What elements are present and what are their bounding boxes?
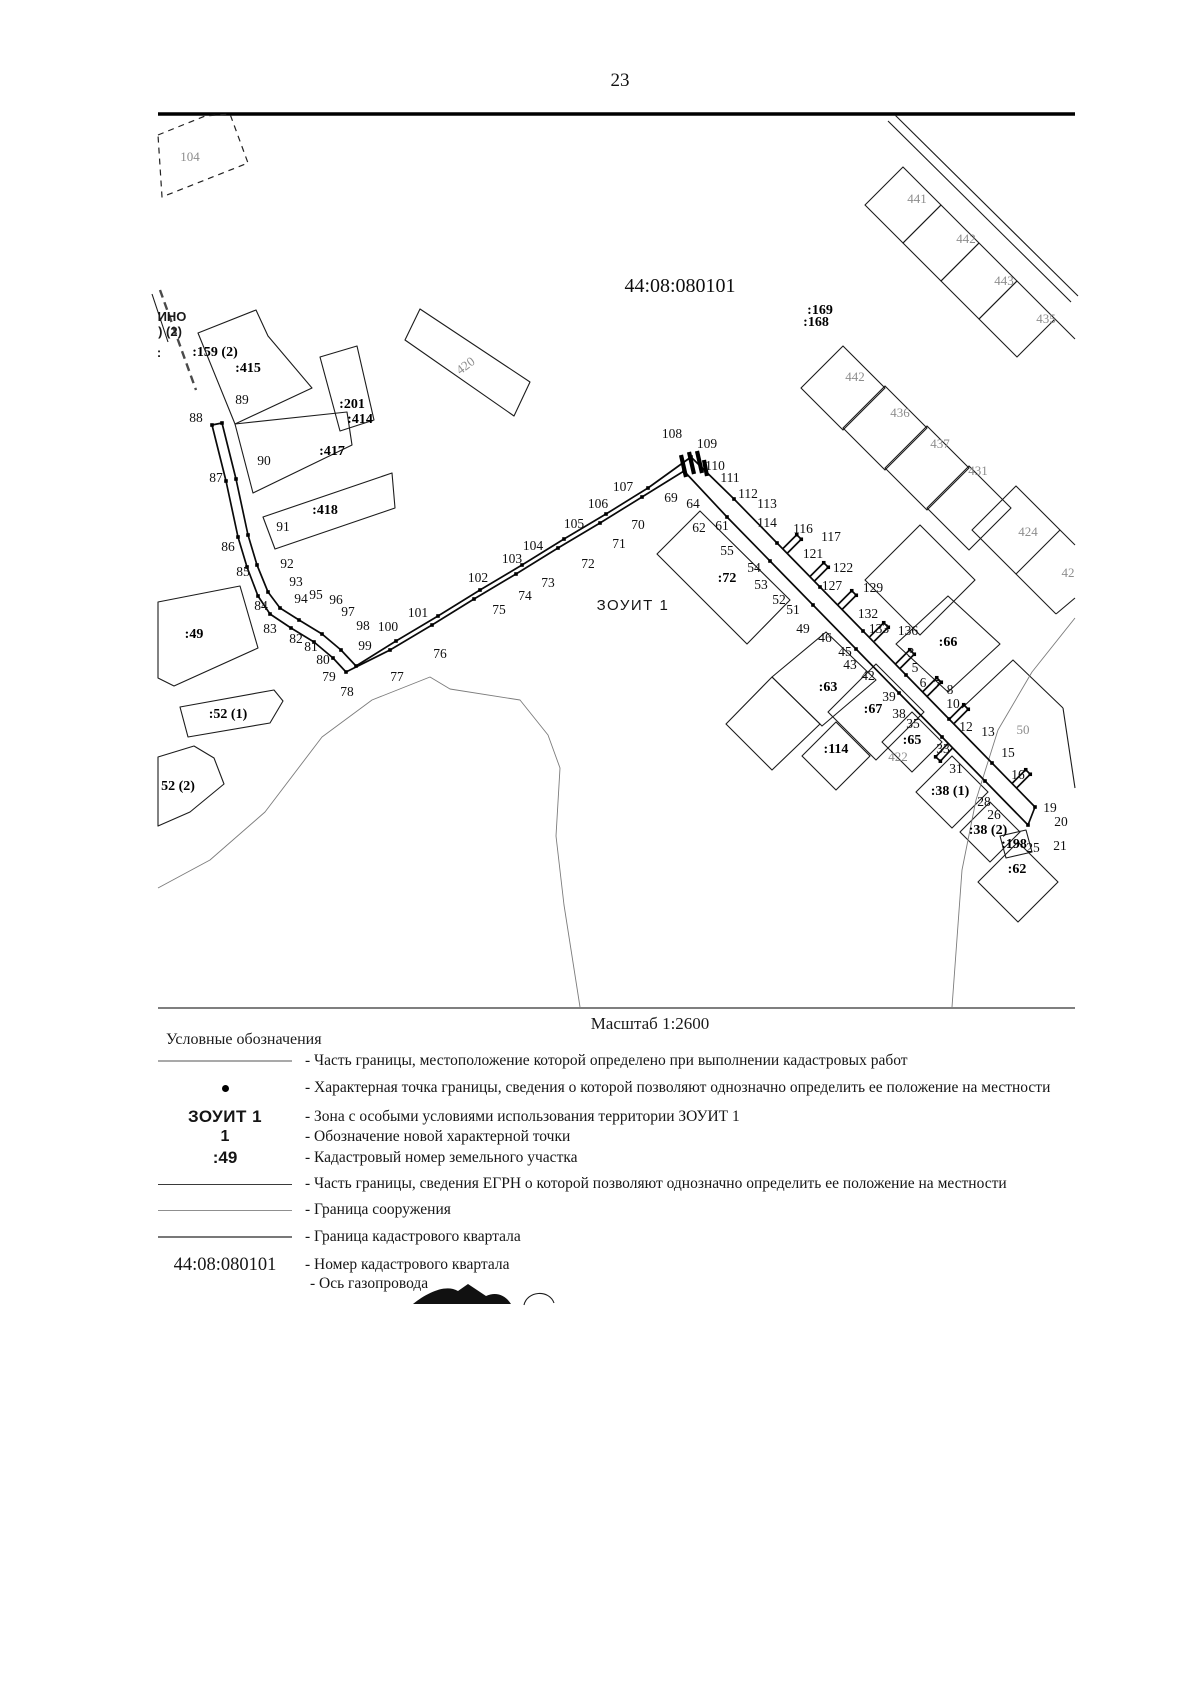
boundary-point-dot [826, 565, 830, 569]
point-number-label: 116 [793, 521, 813, 536]
point-number-label: 83 [263, 621, 277, 636]
boundary-point-dot [861, 629, 865, 633]
boundary-point-dot [935, 676, 939, 680]
point-number-label: 42 [861, 668, 875, 683]
quarter-curve [158, 677, 580, 1007]
pipeline-junction-mark [681, 455, 686, 477]
boundary-point-dot [246, 533, 250, 537]
legend-title: Условные обозначения [166, 1031, 322, 1049]
point-number-label: 105 [564, 516, 585, 531]
legend-row: - Граница сооружения [0, 1198, 1200, 1222]
parcel-417 [235, 412, 352, 493]
parcel-number-label: :201 [339, 397, 365, 412]
legend-row-text: - Часть границы, местоположение которой … [305, 1049, 908, 1073]
parcel-437 [885, 426, 969, 510]
parcel-edge [1060, 530, 1075, 545]
boundary-point-dot [966, 707, 970, 711]
parcel-65 [882, 712, 942, 772]
boundary-point-dot [472, 597, 476, 601]
parcel-436 [843, 386, 927, 470]
pipeline-stub [896, 650, 915, 669]
pipeline-stub [936, 744, 953, 761]
boundary-point-dot [234, 477, 238, 481]
pipeline-junction-mark [697, 451, 702, 473]
parcel-442 [903, 205, 979, 281]
point-number-label: 436 [890, 405, 910, 420]
point-number-label: 52 [772, 592, 786, 607]
parcel-number-label: :414 [347, 412, 373, 427]
boundary-point-dot [598, 521, 602, 525]
parcel-441 [865, 167, 941, 243]
boundary-point-dot [297, 618, 301, 622]
point-number-label: 422 [888, 749, 908, 764]
parcel-number-label: 52 (2) [161, 779, 195, 794]
parcel-442b [801, 346, 885, 430]
parcel-number-label: :67 [864, 702, 883, 717]
quarter-band [152, 294, 168, 342]
point-number-label: 89 [235, 392, 249, 407]
parcel-50-edge [962, 660, 1063, 708]
boundary-point-dot [394, 639, 398, 643]
point-number-label: 71 [612, 536, 626, 551]
boundary-point-dot [562, 537, 566, 541]
point-number-label: 16 [1011, 767, 1025, 782]
point-number-label: 64 [686, 496, 700, 511]
point-number-label: 33 [936, 741, 950, 756]
boundary-point-dot [1028, 772, 1032, 776]
parcel-63 [772, 632, 876, 726]
point-number-label: 15 [1001, 745, 1015, 760]
legend-line-symbol [158, 1060, 292, 1062]
point-number-label: 7 [934, 677, 941, 692]
page-number: 23 [540, 70, 700, 92]
boundary-point-dot [947, 717, 951, 721]
point-number-label: 8 [947, 682, 954, 697]
point-number-label: 28 [977, 794, 991, 809]
boundary-point-dot [245, 565, 249, 569]
parcel-201 [320, 346, 374, 431]
point-number-label: ИНО [158, 309, 187, 324]
boundary-point-dot [210, 423, 214, 427]
parcel-number-label: :66 [939, 635, 958, 650]
parcel-66 [896, 596, 1000, 692]
boundary-point-dot [897, 691, 901, 695]
parcel-number-label: :417 [319, 444, 345, 459]
legend-row: - Характерная точка границы, сведения о … [0, 1076, 1200, 1100]
boundary-point-dot [939, 680, 943, 684]
parcel-number-label: :159 (2) [192, 345, 238, 360]
legend-line-symbol [158, 1184, 292, 1185]
boundary-point-dot [768, 559, 772, 563]
point-number-label: 81 [304, 639, 318, 654]
parcel-number-label: :72 [718, 571, 737, 586]
point-number-label: 98 [356, 618, 370, 633]
point-number-label: 101 [408, 605, 428, 620]
point-number-label: 46 [818, 630, 832, 645]
point-number-label: 84 [254, 598, 268, 613]
boundary-point-dot [912, 652, 916, 656]
point-number-label: 95 [309, 587, 323, 602]
point-number-label: 132 [858, 606, 878, 621]
parcel-415 [198, 310, 312, 424]
quarter-curve [952, 618, 1075, 1007]
point-number-label: 88 [189, 410, 203, 425]
point-number-label: 129 [863, 580, 884, 595]
point-number-label: 122 [833, 560, 853, 575]
point-number-label: 76 [433, 646, 447, 661]
legend-row-text: - Кадастровый номер земельного участка [305, 1146, 578, 1170]
point-number-label: 136 [898, 623, 919, 638]
parcel-number-label: :38 (2) [969, 823, 1008, 838]
boundary-point-dot [289, 626, 293, 630]
pipeline-junction-mark [689, 452, 694, 474]
legend-symbol-line [150, 1172, 300, 1196]
point-number-label: 20 [1054, 814, 1068, 829]
parcel-52-2 [158, 746, 224, 826]
point-number-label: 127 [822, 578, 843, 593]
legend-line-symbol [158, 1210, 292, 1211]
point-number-label: 79 [322, 669, 336, 684]
point-number-label: 62 [692, 520, 706, 535]
point-number-label: 99 [358, 638, 372, 653]
zone-label: ЗОУИТ 1 [597, 597, 670, 614]
point-number-label: 102 [468, 570, 488, 585]
boundary-point-dot [850, 589, 854, 593]
legend-row-text: - Граница сооружения [305, 1198, 451, 1222]
legend-symbol-text: :49 [150, 1146, 300, 1170]
quarter-band [160, 290, 196, 390]
legend-symbol-line [150, 1225, 300, 1249]
parcel-number-label: :63 [819, 680, 838, 695]
point-number-label: 117 [821, 529, 841, 544]
point-number-label: 54 [747, 560, 761, 575]
point-number-label: 85 [236, 564, 250, 579]
pipeline-stub [1012, 770, 1031, 789]
boundary-point-dot [940, 735, 944, 739]
boundary-point-dot [882, 621, 886, 625]
parcel-114 [802, 722, 870, 790]
point-number-label: 114 [757, 515, 777, 530]
point-number-label: 10 [946, 696, 960, 711]
boundary-point-dot [236, 535, 240, 539]
point-number-label: 87 [209, 470, 223, 485]
boundary-point-dot [725, 515, 729, 519]
point-number-label: 55 [720, 543, 734, 558]
point-number-label: 70 [631, 517, 645, 532]
boundary-point-dot [646, 486, 650, 490]
boundary-point-dot [344, 670, 348, 674]
boundary-point-dot [818, 585, 822, 589]
pipeline-cap [1028, 807, 1035, 825]
point-number-label: 106 [588, 496, 609, 511]
parcel-50-edge [1063, 708, 1075, 788]
point-number-label: 104 [523, 538, 544, 553]
point-number-label: 442 [956, 231, 976, 246]
pipeline-stub [950, 705, 969, 724]
parcel-420 [405, 309, 530, 416]
boundary-point-dot [775, 541, 779, 545]
legend-row-text: - Часть границы, сведения ЕГРН о которой… [305, 1172, 1007, 1196]
boundary-point-dot [331, 656, 335, 660]
boundary-point-dot [224, 479, 228, 483]
parcel-number-label: :198 [1001, 837, 1027, 852]
point-number-label: 96 [329, 592, 343, 607]
boundary-point-dot [682, 469, 686, 473]
legend-row: - Часть границы, сведения ЕГРН о которой… [0, 1172, 1200, 1196]
pipeline-stub [783, 535, 802, 554]
legend-symbol-dot [150, 1076, 300, 1100]
parcel-edge [1055, 319, 1075, 339]
point-number-label: 78 [340, 684, 354, 699]
point-number-label: 74 [518, 588, 532, 603]
parcel-unlabeled [726, 677, 820, 770]
pipeline-stub [870, 623, 889, 642]
parcel-418 [263, 473, 395, 549]
point-number-label: 103 [502, 551, 523, 566]
boundary-point-dot [962, 703, 966, 707]
legend-line-symbol [158, 1236, 292, 1238]
legend-row-text: - Ось газопровода [310, 1272, 428, 1296]
pipeline-stub [838, 591, 857, 610]
boundary-point-dot [266, 590, 270, 594]
boundary-point-icon [222, 1085, 229, 1092]
boundary-point-dot [604, 512, 608, 516]
point-number-label: 35 [906, 716, 920, 731]
parcel-edge [1016, 574, 1056, 614]
parcel-38-1 [916, 756, 988, 828]
point-number-label: 113 [757, 496, 777, 511]
parcel-198 [1000, 830, 1032, 858]
boundary-point-dot [732, 497, 736, 501]
parcel-number-label: :168 [803, 315, 829, 330]
point-number-label: 53 [754, 577, 768, 592]
parcel-unlabeled [865, 525, 975, 635]
legend-symbol-empty [150, 1272, 300, 1296]
point-number-label: 420 [453, 354, 478, 378]
legend-text-symbol: :49 [213, 1148, 238, 1168]
boundary-point-dot [312, 640, 316, 644]
legend-text-symbol: ЗОУИТ 1 [188, 1107, 262, 1127]
boundary-point-dot [795, 533, 799, 537]
boundary-point-dot [388, 648, 392, 652]
point-number-label: 31 [949, 761, 963, 776]
parcel-52-1 [180, 690, 283, 737]
boundary-point-dot [934, 755, 938, 759]
point-number-label: 94 [294, 591, 308, 606]
point-number-label: 442 [845, 369, 865, 384]
point-number-label: 437 [930, 436, 950, 451]
boundary-point-dot [1026, 823, 1030, 827]
point-number-label: 104 [180, 149, 200, 164]
point-number-label: 112 [738, 486, 758, 501]
boundary-point-dot [939, 759, 943, 763]
boundary-point-dot [1024, 768, 1028, 772]
point-number-label: 3 [908, 645, 915, 660]
pipeline-cap [212, 423, 222, 425]
boundary-point-dot [520, 563, 524, 567]
parcel-38-2 [960, 802, 1020, 862]
point-number-label: 19 [1043, 800, 1057, 815]
boundary-point-dot [904, 673, 908, 677]
point-number-label: 431 [968, 463, 988, 478]
boundary-point-dot [354, 664, 358, 668]
road-line [888, 121, 1071, 302]
boundary-point-dot [689, 455, 693, 459]
parcel-424 [972, 486, 1060, 574]
point-number-label: 12 [959, 719, 973, 734]
point-number-label: ) (2) [158, 324, 182, 339]
point-number-label: 121 [803, 546, 823, 561]
pipeline-boundary [222, 423, 1035, 807]
point-number-label: 45 [838, 644, 852, 659]
parcel-number-label: :114 [824, 742, 849, 757]
point-number-label: 49 [796, 621, 810, 636]
point-number-label: 50 [1017, 722, 1030, 737]
point-number-label: 21 [1053, 838, 1067, 853]
boundary-point-dot [640, 495, 644, 499]
point-number-label: 77 [390, 669, 404, 684]
point-number-label: 6 [920, 675, 927, 690]
point-number-label: 110 [705, 458, 725, 473]
legend-symbol-line [150, 1049, 300, 1073]
legend-row: - Часть границы, местоположение которой … [0, 1049, 1200, 1073]
point-number-label: 90 [257, 453, 271, 468]
point-number-label: 72 [581, 556, 595, 571]
legend-symbol-line [150, 1198, 300, 1222]
parcel-number-label: :169 [807, 303, 833, 318]
parcel-number-label: :418 [312, 503, 338, 518]
point-number-label: 100 [378, 619, 399, 634]
boundary-point-dot [430, 623, 434, 627]
point-number-label: 51 [786, 602, 800, 617]
parcel-443 [941, 243, 1017, 319]
point-number-label: 443 [994, 273, 1014, 288]
boundary-point-dot [1033, 805, 1037, 809]
point-number-label: 441 [907, 191, 927, 206]
parcel-49 [158, 586, 258, 686]
point-number-label: 107 [613, 479, 634, 494]
boundary-point-dot [220, 421, 224, 425]
boundary-point-dot [556, 546, 560, 550]
boundary-point-dot [268, 612, 272, 616]
pipeline-stub [810, 563, 829, 582]
parcel-62 [978, 842, 1058, 922]
parcel-67 [828, 664, 924, 760]
point-number-label: 69 [664, 490, 678, 505]
point-number-label: 92 [280, 556, 294, 571]
legend-row: :49- Кадастровый номер земельного участк… [0, 1146, 1200, 1170]
boundary-point-dot [436, 614, 440, 618]
point-number-label: 91 [276, 519, 290, 534]
parcel-104 [158, 114, 248, 197]
point-number-label: 109 [697, 436, 718, 451]
boundary-point-dot [278, 606, 282, 610]
point-number-label: 82 [289, 631, 303, 646]
boundary-point-dot [886, 625, 890, 629]
pipeline-boundary [212, 425, 1028, 825]
legend-row: - Граница кадастрового квартала [0, 1225, 1200, 1249]
boundary-point-dot [908, 648, 912, 652]
point-number-label: 80 [316, 652, 330, 667]
point-number-label: 93 [289, 574, 303, 589]
point-number-label: 38 [892, 706, 906, 721]
boundary-point-dot [983, 779, 987, 783]
point-number-label: 73 [541, 575, 555, 590]
point-number-label: 25 [1026, 840, 1040, 855]
point-number-label: 108 [662, 426, 683, 441]
map-scale-label: Масштаб 1:2600 [530, 1014, 770, 1034]
parcel-number-label: :62 [1008, 862, 1027, 877]
parcel-435 [979, 281, 1055, 357]
point-number-label: 111 [720, 470, 739, 485]
pipeline-junction-mark [704, 460, 707, 476]
legend-row: - Ось газопровода [0, 1272, 1200, 1296]
boundary-point-dot [822, 561, 826, 565]
point-number-label: : [157, 345, 161, 360]
point-number-label: 5 [912, 660, 919, 675]
point-number-label: 61 [715, 518, 729, 533]
boundary-point-dot [339, 648, 343, 652]
point-number-label: 424 [1018, 524, 1038, 539]
point-number-label: 13 [981, 724, 995, 739]
boundary-point-dot [854, 593, 858, 597]
legend-row-text: - Граница кадастрового квартала [305, 1225, 521, 1249]
parcel-number-label: :38 (1) [931, 784, 970, 799]
boundary-point-dot [256, 594, 260, 598]
parcel-72 [657, 511, 790, 644]
boundary-point-dot [514, 572, 518, 576]
point-number-label: 86 [221, 539, 235, 554]
road-line [895, 115, 1078, 296]
parcel-431 [927, 466, 1011, 550]
legend-text-symbol: 1 [221, 1128, 230, 1146]
boundary-point-dot [990, 761, 994, 765]
point-number-label: 26 [987, 807, 1001, 822]
parcel-edge [1056, 598, 1075, 614]
legend-row-text: - Характерная точка границы, сведения о … [305, 1076, 1050, 1100]
point-number-label: 39 [882, 689, 896, 704]
parcel-number-label: :65 [903, 733, 922, 748]
point-number-label: 435 [1036, 311, 1056, 326]
quarter-number-label: 44:08:080101 [624, 275, 735, 297]
boundary-point-dot [255, 563, 259, 567]
document-page: 23 44:08:080101ЗОУИТ 1ИНО) (2)::169:168:… [0, 0, 1200, 1697]
point-number-label: 133 [869, 621, 890, 636]
boundary-point-dot [854, 647, 858, 651]
boundary-point-dot [811, 603, 815, 607]
parcel-number-label: :52 (1) [209, 707, 248, 722]
pipeline-stub [923, 678, 942, 697]
point-number-label: 97 [341, 604, 355, 619]
point-number-label: 75 [492, 602, 506, 617]
boundary-point-dot [320, 632, 324, 636]
boundary-point-dot [799, 537, 803, 541]
point-number-label: 43 [843, 657, 857, 672]
boundary-point-dot [478, 588, 482, 592]
point-number-label: 42 [1062, 565, 1075, 580]
parcel-number-label: :415 [235, 361, 261, 376]
parcel-number-label: :49 [185, 627, 204, 642]
